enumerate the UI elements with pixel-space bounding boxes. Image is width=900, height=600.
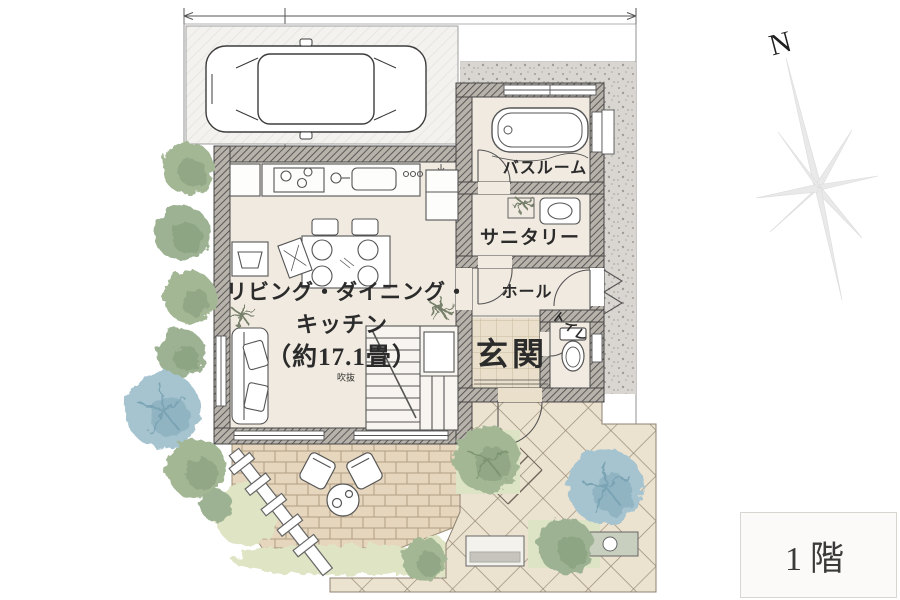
tree-green: [166, 438, 226, 498]
label-hall: ホール: [501, 278, 552, 302]
planter-box: [466, 536, 524, 566]
car-illustration: [206, 39, 426, 139]
tree-green: [164, 271, 216, 323]
label-ldk-line1: リビング・ダイニング・: [226, 276, 468, 306]
floor-level-badge: 1階: [740, 512, 897, 598]
compass-star: [756, 58, 878, 300]
tree-green: [454, 426, 520, 492]
tv-cabinet: [232, 242, 268, 276]
tree-green: [154, 205, 210, 261]
sofa: [232, 328, 269, 424]
label-ldk-line2: キッチン: [296, 307, 388, 339]
tree-green: [402, 538, 446, 582]
tree-green: [201, 490, 233, 522]
label-entrance: 玄関: [476, 329, 548, 375]
label-sanitary: サニタリー: [480, 223, 580, 250]
tree-green: [157, 329, 205, 377]
floorplan: リビング・ダイニング・ キッチン （約17.1畳） 吹抜 バスルーム サニタリー…: [0, 0, 900, 600]
label-void: 吹抜: [337, 371, 355, 384]
label-bathroom: バスルーム: [503, 154, 588, 178]
label-ldk-size: （約17.1畳）: [266, 337, 418, 373]
refrigerator: [426, 170, 458, 220]
stepping-stone: [588, 532, 638, 556]
garden-table: [327, 484, 359, 516]
tree-green: [538, 518, 594, 574]
tree-green: [162, 142, 214, 194]
tree-blue: [568, 449, 644, 525]
tree-blue: [125, 372, 201, 448]
sink: [352, 168, 396, 190]
